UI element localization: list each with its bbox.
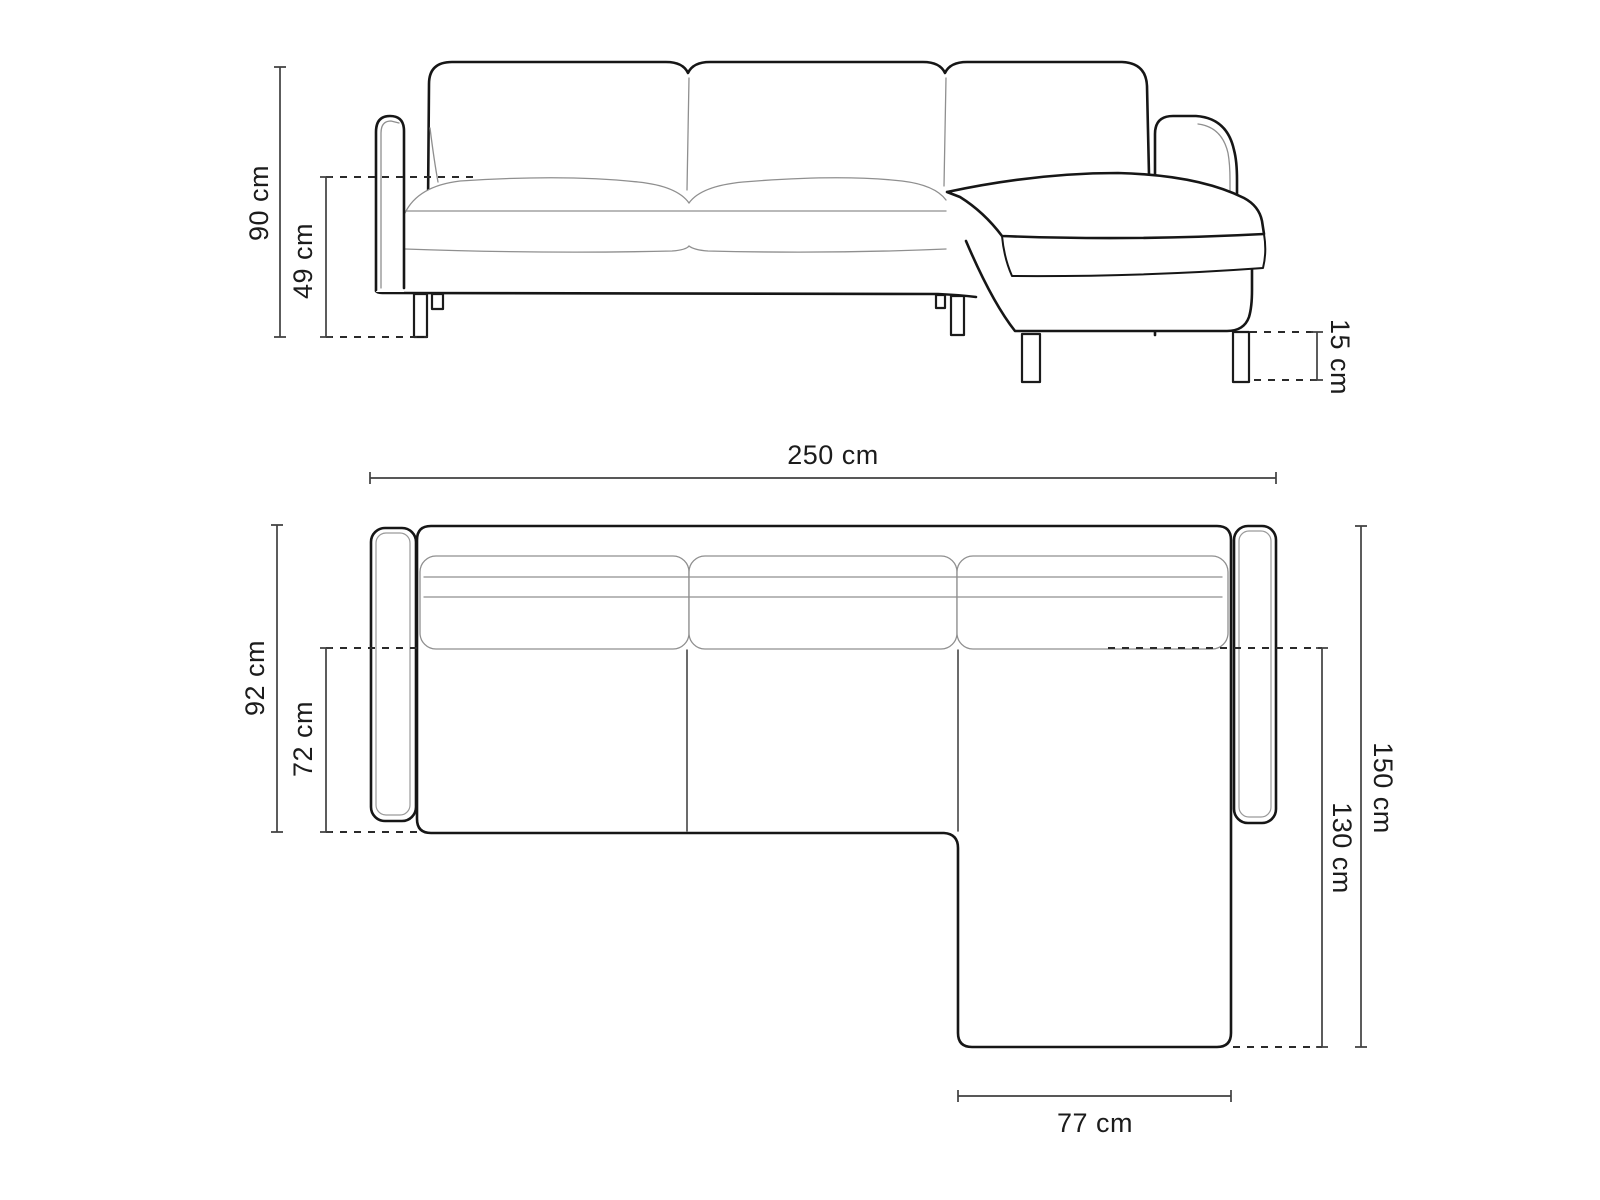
dim-label-total-depth: 92 cm <box>240 640 270 716</box>
middle-back-leg <box>936 295 945 308</box>
plan-back-cushion-2 <box>689 556 957 649</box>
front-view: 90 cm 49 cm 15 cm <box>244 62 1355 395</box>
dim-total-width: 250 cm <box>370 440 1276 484</box>
dim-label-leg-height: 15 cm <box>1325 319 1355 395</box>
left-armrest <box>376 116 404 292</box>
plan-right-armrest <box>1234 526 1276 823</box>
dim-label-chaise-total-depth: 150 cm <box>1368 742 1398 834</box>
dim-chaise-total-depth: 150 cm <box>1355 526 1398 1047</box>
sofa-dimension-sheet: 90 cm 49 cm 15 cm <box>0 0 1600 1200</box>
plan-back-cushion-1 <box>420 556 689 649</box>
dim-chaise-width: 77 cm <box>958 1090 1231 1138</box>
plan-back-cushion-3 <box>957 556 1228 649</box>
dim-total-depth: 92 cm <box>240 525 283 832</box>
dim-label-chaise-width: 77 cm <box>1057 1108 1133 1138</box>
dim-leg-height: 15 cm <box>1250 319 1355 395</box>
technical-drawing: 90 cm 49 cm 15 cm <box>0 0 1600 1200</box>
chaise-right-leg <box>1233 332 1249 382</box>
chaise-left-leg <box>1022 334 1040 382</box>
plan-left-armrest <box>371 528 416 821</box>
dim-label-seat-depth: 72 cm <box>288 701 318 777</box>
sofa-plan-outline <box>371 526 1276 1047</box>
dim-label-seat-height: 49 cm <box>288 223 318 299</box>
dim-label-chaise-length: 130 cm <box>1327 802 1357 894</box>
dim-label-total-width: 250 cm <box>787 440 879 470</box>
plan-view: 250 cm 92 cm 72 cm 150 cm 130 cm 77 cm <box>240 440 1398 1138</box>
left-front-leg <box>414 294 427 337</box>
sofa-front-outline <box>376 62 1265 382</box>
dim-label-total-height: 90 cm <box>244 165 274 241</box>
left-back-leg <box>432 294 443 309</box>
dim-total-height: 90 cm <box>244 67 286 337</box>
middle-front-leg <box>951 296 964 335</box>
